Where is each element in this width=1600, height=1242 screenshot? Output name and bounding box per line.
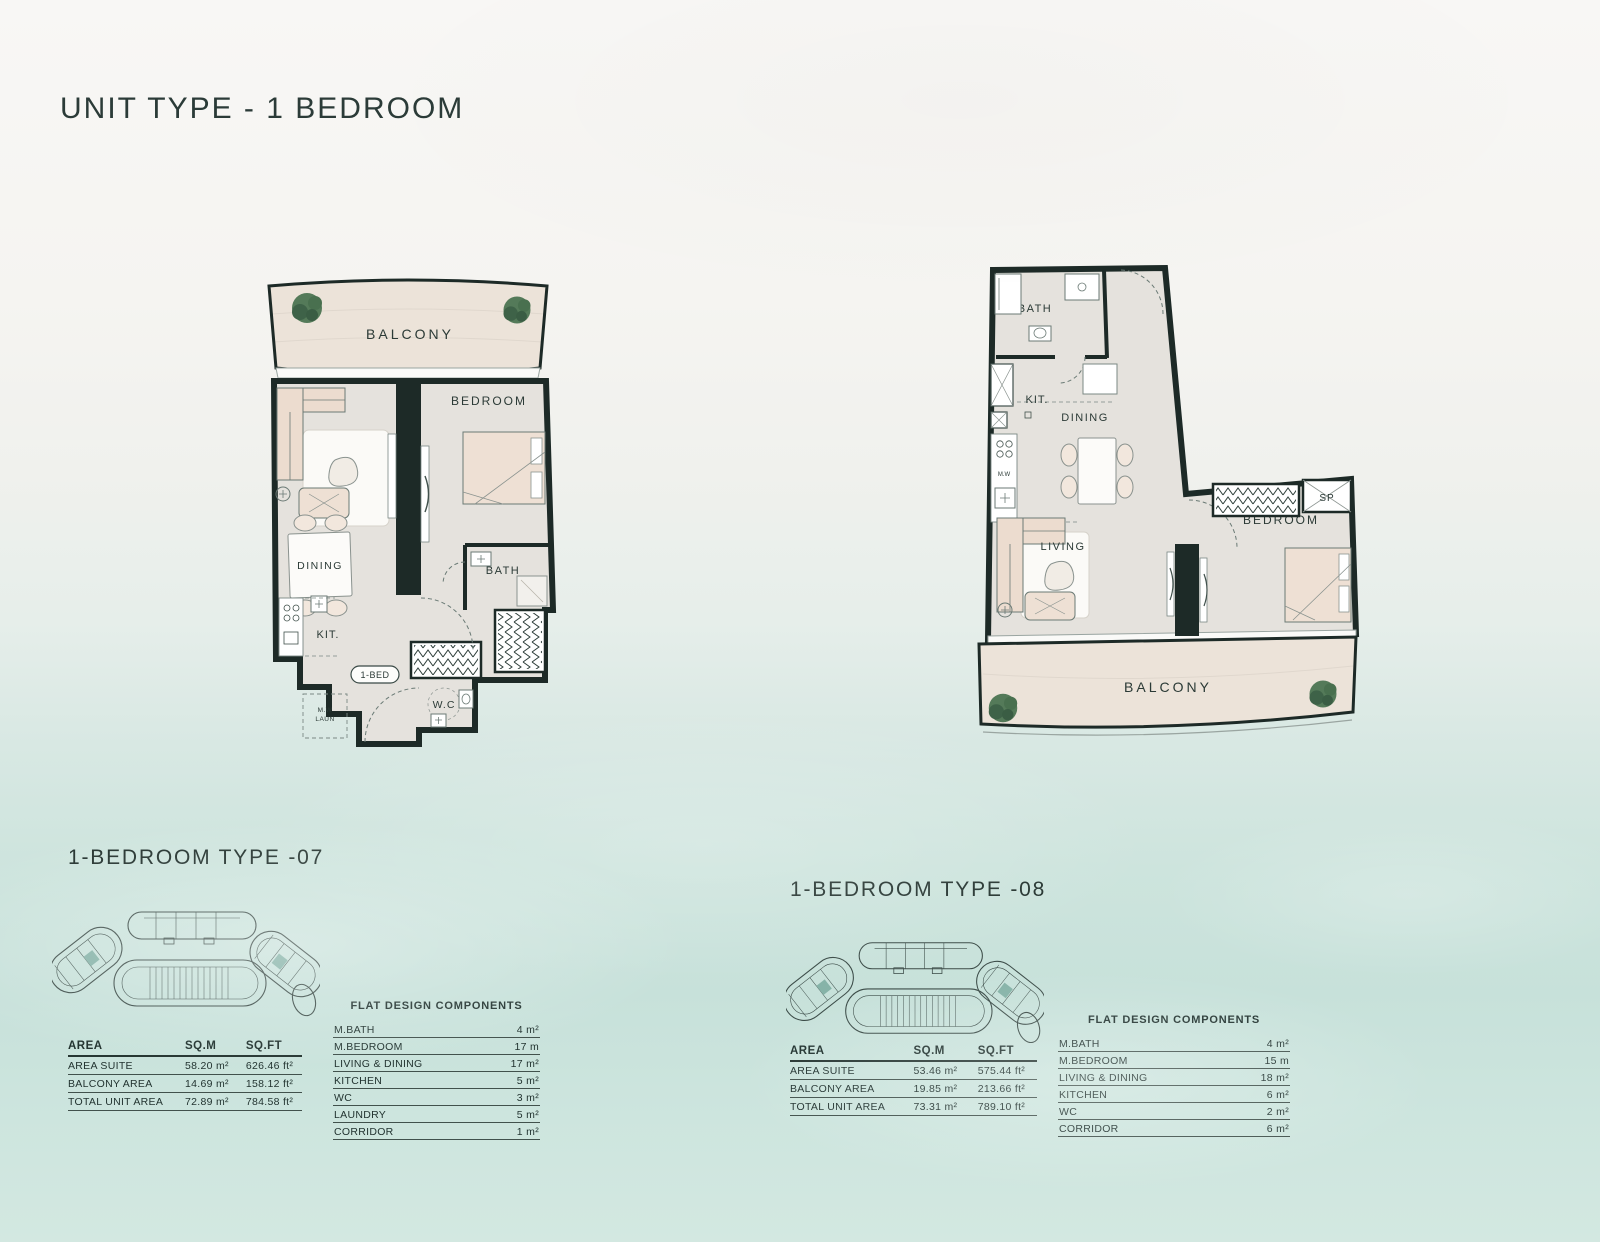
component-value: 5 m² bbox=[517, 1109, 539, 1121]
table-row: AREA SUITE 53.46 m² 575.44 ft² bbox=[790, 1061, 1037, 1080]
list-item: M.BEDROOM 15 m bbox=[1058, 1052, 1290, 1069]
component-label: M.BATH bbox=[334, 1024, 375, 1036]
floorplan-type-07: BALCONY BEDROOM bbox=[243, 262, 573, 752]
row-label: AREA SUITE bbox=[790, 1061, 914, 1080]
component-label: WC bbox=[334, 1092, 352, 1104]
washer-label: M.W bbox=[998, 472, 1011, 478]
list-item: CORRIDOR 6 m² bbox=[1058, 1120, 1290, 1137]
row-sqm: 72.89 m² bbox=[185, 1093, 246, 1111]
partition-wall-08 bbox=[1175, 544, 1199, 636]
col-header-sqm: SQ.M bbox=[185, 1038, 246, 1056]
site-key-plan-08 bbox=[786, 928, 1044, 1048]
unit-heading-07: 1-BEDROOM TYPE -07 bbox=[68, 846, 324, 870]
dining-label: DINING bbox=[1061, 412, 1109, 424]
table-row: TOTAL UNIT AREA 73.31 m² 789.10 ft² bbox=[790, 1098, 1037, 1116]
sp-label: SP bbox=[1319, 493, 1334, 504]
component-label: KITCHEN bbox=[1059, 1089, 1107, 1101]
col-header-sqm: SQ.M bbox=[914, 1043, 978, 1061]
area-table-07: AREA SQ.M SQ.FT AREA SUITE 58.20 m² 626.… bbox=[68, 1038, 302, 1111]
building-outline bbox=[52, 919, 130, 1001]
component-value: 4 m² bbox=[517, 1024, 539, 1036]
table-row: TOTAL UNIT AREA 72.89 m² 784.58 ft² bbox=[68, 1093, 302, 1111]
component-value: 17 m² bbox=[511, 1058, 539, 1070]
laundry-label-bottom: LAUN bbox=[315, 716, 334, 723]
row-label: TOTAL UNIT AREA bbox=[790, 1098, 914, 1116]
unit-tag-label: 1-BED bbox=[360, 670, 389, 680]
tree-icon bbox=[989, 694, 1018, 723]
storage-sp: SP bbox=[1303, 480, 1351, 512]
row-sqm: 53.46 m² bbox=[914, 1061, 978, 1080]
row-sqft: 626.46 ft² bbox=[246, 1056, 302, 1075]
component-label: CORRIDOR bbox=[334, 1126, 394, 1138]
row-sqft: 789.10 ft² bbox=[978, 1098, 1037, 1116]
row-label: TOTAL UNIT AREA bbox=[68, 1093, 185, 1111]
component-value: 17 m bbox=[514, 1041, 539, 1053]
building-outline bbox=[242, 923, 320, 1005]
row-sqm: 19.85 m² bbox=[914, 1080, 978, 1098]
component-value: 6 m² bbox=[1267, 1089, 1289, 1101]
tree-icon bbox=[1310, 681, 1337, 708]
row-label: BALCONY AREA bbox=[790, 1080, 914, 1098]
components-title: FLAT DESIGN COMPONENTS bbox=[1058, 1014, 1290, 1026]
kitchen-label: KIT. bbox=[317, 629, 340, 641]
component-value: 15 m bbox=[1264, 1055, 1289, 1067]
row-label: AREA SUITE bbox=[68, 1056, 185, 1075]
floorplan-type-08: BALCONY BATH bbox=[963, 262, 1363, 757]
unit-heading-08: 1-BEDROOM TYPE -08 bbox=[790, 878, 1046, 902]
components-table-08: FLAT DESIGN COMPONENTS M.BATH 4 m² M.BED… bbox=[1058, 1014, 1290, 1137]
laundry-label-top: M.W bbox=[318, 707, 333, 714]
bath-label: BATH bbox=[486, 565, 521, 577]
building-outline bbox=[128, 912, 256, 939]
col-header-area: AREA bbox=[790, 1043, 914, 1061]
component-label: M.BEDROOM bbox=[334, 1041, 403, 1053]
row-sqm: 14.69 m² bbox=[185, 1075, 246, 1093]
row-sqm: 73.31 m² bbox=[914, 1098, 978, 1116]
brochure-page: UNIT TYPE - 1 BEDROOM BALCONY bbox=[0, 0, 1600, 1242]
list-item: LIVING & DINING 17 m² bbox=[333, 1055, 540, 1072]
components-table-07: FLAT DESIGN COMPONENTS M.BATH 4 m² M.BED… bbox=[333, 1000, 540, 1140]
row-sqft: 575.44 ft² bbox=[978, 1061, 1037, 1080]
component-value: 3 m² bbox=[517, 1092, 539, 1104]
row-sqft: 158.12 ft² bbox=[246, 1075, 302, 1093]
kitchen-label: KIT. bbox=[1026, 394, 1049, 406]
list-item: M.BEDROOM 17 m bbox=[333, 1038, 540, 1055]
table-header-row: AREA SQ.M SQ.FT bbox=[68, 1038, 302, 1056]
living-label: LIVING bbox=[1040, 541, 1085, 553]
list-item: CORRIDOR 1 m² bbox=[333, 1123, 540, 1140]
balcony-07: BALCONY bbox=[269, 280, 547, 378]
table-row: BALCONY AREA 19.85 m² 213.66 ft² bbox=[790, 1080, 1037, 1098]
component-label: M.BATH bbox=[1059, 1038, 1100, 1050]
component-label: CORRIDOR bbox=[1059, 1123, 1119, 1135]
component-label: LIVING & DINING bbox=[334, 1058, 423, 1070]
tree-icon bbox=[292, 293, 322, 323]
components-title: FLAT DESIGN COMPONENTS bbox=[333, 1000, 540, 1012]
component-label: KITCHEN bbox=[334, 1075, 382, 1087]
pool-outline bbox=[1014, 1010, 1044, 1046]
component-value: 1 m² bbox=[517, 1126, 539, 1138]
component-value: 5 m² bbox=[517, 1075, 539, 1087]
row-sqft: 213.66 ft² bbox=[978, 1080, 1037, 1098]
tree-icon bbox=[504, 297, 531, 324]
closet-herringbone bbox=[1213, 484, 1299, 516]
list-item: WC 2 m² bbox=[1058, 1103, 1290, 1120]
list-item: LIVING & DINING 18 m² bbox=[1058, 1069, 1290, 1086]
table-header-row: AREA SQ.M SQ.FT bbox=[790, 1043, 1037, 1061]
partition-wall-07 bbox=[396, 381, 421, 595]
balcony-label: BALCONY bbox=[366, 326, 454, 342]
bath-label: BATH bbox=[1018, 303, 1053, 315]
col-header-area: AREA bbox=[68, 1038, 185, 1056]
bedroom-label: BEDROOM bbox=[451, 394, 527, 408]
table-row: AREA SUITE 58.20 m² 626.46 ft² bbox=[68, 1056, 302, 1075]
component-value: 6 m² bbox=[1267, 1123, 1289, 1135]
list-item: KITCHEN 6 m² bbox=[1058, 1086, 1290, 1103]
component-value: 4 m² bbox=[1267, 1038, 1289, 1050]
component-value: 18 m² bbox=[1261, 1072, 1289, 1084]
balcony-label: BALCONY bbox=[1124, 679, 1212, 695]
page-title: UNIT TYPE - 1 BEDROOM bbox=[60, 92, 464, 126]
wardrobe-slat bbox=[388, 434, 396, 518]
component-label: WC bbox=[1059, 1106, 1077, 1118]
list-item: M.BATH 4 m² bbox=[333, 1021, 540, 1038]
row-sqm: 58.20 m² bbox=[185, 1056, 246, 1075]
building-outline bbox=[859, 943, 982, 969]
unit-tag-07: 1-BED bbox=[351, 666, 399, 683]
list-item: WC 3 m² bbox=[333, 1089, 540, 1106]
component-label: M.BEDROOM bbox=[1059, 1055, 1128, 1067]
list-item: LAUNDRY 5 m² bbox=[333, 1106, 540, 1123]
pool-outline bbox=[289, 981, 320, 1018]
component-label: LAUNDRY bbox=[334, 1109, 386, 1121]
building-outline bbox=[968, 953, 1044, 1032]
row-sqft: 784.58 ft² bbox=[246, 1093, 302, 1111]
wc-label: W.C bbox=[433, 699, 456, 711]
row-label: BALCONY AREA bbox=[68, 1075, 185, 1093]
col-header-sqft: SQ.FT bbox=[246, 1038, 302, 1056]
area-table-08: AREA SQ.M SQ.FT AREA SUITE 53.46 m² 575.… bbox=[790, 1043, 1037, 1116]
list-item: M.BATH 4 m² bbox=[1058, 1035, 1290, 1052]
component-value: 2 m² bbox=[1267, 1106, 1289, 1118]
table-row: BALCONY AREA 14.69 m² 158.12 ft² bbox=[68, 1075, 302, 1093]
list-item: KITCHEN 5 m² bbox=[333, 1072, 540, 1089]
living-area-08: LIVING bbox=[997, 518, 1089, 620]
dining-label: DINING bbox=[297, 560, 343, 572]
balcony-08: BALCONY bbox=[979, 630, 1356, 735]
building-outline bbox=[786, 949, 862, 1028]
site-key-plan-07 bbox=[52, 898, 320, 1020]
component-label: LIVING & DINING bbox=[1059, 1072, 1148, 1084]
col-header-sqft: SQ.FT bbox=[978, 1043, 1037, 1061]
wardrobe-slat bbox=[1200, 558, 1207, 622]
